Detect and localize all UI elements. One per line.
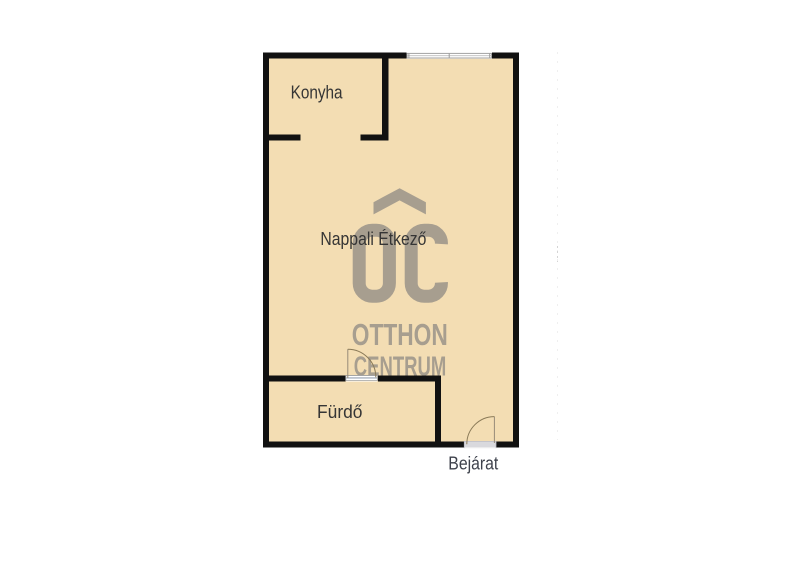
svg-text:Bejárat: Bejárat — [448, 453, 498, 473]
svg-text:Fürdő: Fürdő — [317, 402, 363, 422]
svg-text:Nappali Étkező: Nappali Étkező — [320, 229, 426, 249]
svg-text:OTTHON: OTTHON — [352, 318, 448, 352]
svg-text:Konyha: Konyha — [291, 83, 344, 103]
